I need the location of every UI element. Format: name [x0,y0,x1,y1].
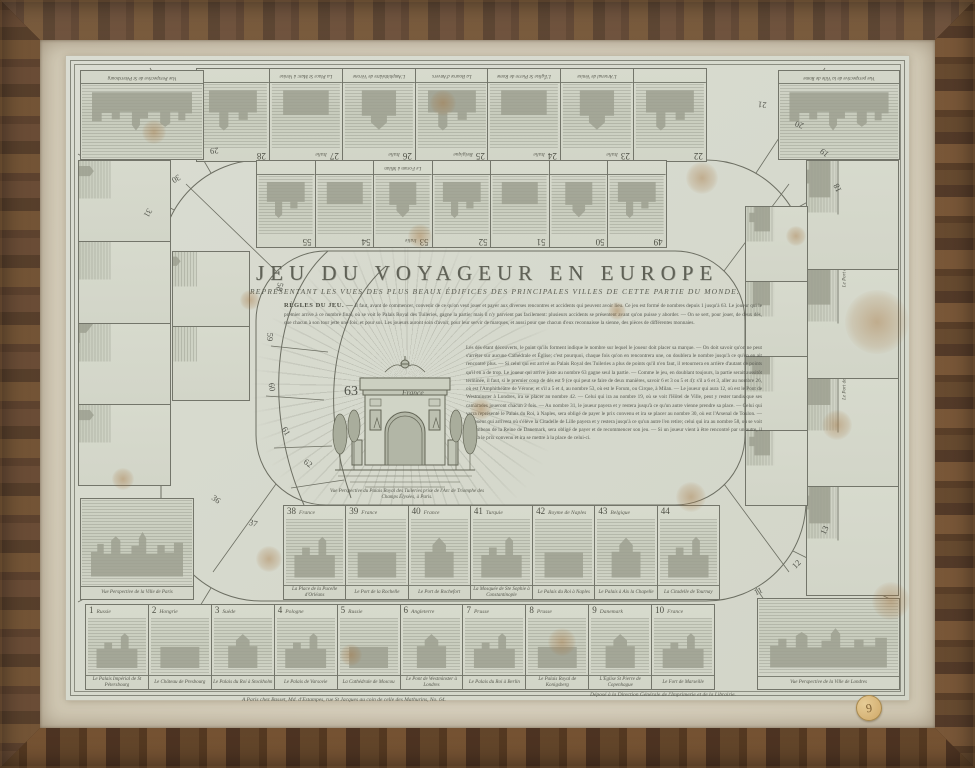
cell-engraving [259,176,313,234]
cell-caption: L'Amphithéâtre de Vérone [343,69,415,83]
cell-engraving [286,519,343,584]
cell-country: Belgique [610,511,630,517]
cell-country: Italie [388,151,400,157]
cell-caption [197,69,269,83]
board-cell: 24Italie L'Église St Pierre de Rome [487,69,560,161]
cell-number: 25 [475,151,484,160]
cell-number: 43 [598,507,607,516]
board-cell: 10France Le Fort de Marseille [651,605,715,689]
cell-engraving [563,84,631,148]
cell-number: 42 [536,507,545,516]
board-cell: 55 [256,161,315,247]
cell-engraving [660,519,717,584]
board-cell: 44 La Citadelle de Tournay [657,506,720,599]
cell-engraving [411,519,468,584]
corner-caption: Vue perspective de la Ville de Rome [779,71,899,84]
board-cell: 9Danemark L'Église St Pierre de Copenhag… [588,605,651,689]
board-cell: 50 [549,161,608,247]
board-cell: 51 [490,161,549,247]
board-cell: 40France Le Port de Rochefort [408,506,470,599]
cell-engraving [277,618,335,674]
cell-country: Angleterre [411,610,434,616]
cell-engraving [528,618,586,674]
board-cell: 16Espagne Le Port de Cadix [807,269,898,378]
cell-country: Russie [348,610,362,616]
board-cell: 54 [315,161,374,247]
board-cell: 52 [432,161,491,247]
cell-caption [491,161,549,175]
board-cell: 6Angleterre Le Pont de Westminster à Lon… [400,605,463,689]
cell-engraving [807,378,837,431]
cell-number: 1 [89,606,94,615]
cell-country: Turquie [486,511,503,517]
board-cell: 38France La Place de la Pucelle d'Orléan… [283,506,345,599]
cell-number: 7 [466,606,471,615]
cell-number: 27 [330,151,339,160]
board-cell: 41Turquie La Mosquée de Ste Sophie à Con… [470,506,532,599]
bottom-inner-row: 38France La Place de la Pucelle d'Orléan… [283,505,720,600]
cell-engraving [376,176,430,234]
board-cell: 39France Le Port de la Rochelle [345,506,407,599]
cell-engraving [173,326,197,362]
board-cell: 7Prusse Le Palais du Roi à Berlin [462,605,525,689]
cell-country: Prusse [537,610,552,616]
cell-engraving [535,519,592,584]
left-inner-column: 56 57 [172,251,250,401]
cell-caption: Le Port de la Rochelle [346,585,407,599]
cell-engraving [214,618,272,674]
rules-column: Les dés étant découverts, le point qu'il… [466,344,762,443]
bottom-outer-row: 1Russie Le Palais Impérial de St Pétersb… [85,604,715,690]
cell-engraving [654,618,712,674]
cell-engraving [318,176,372,234]
cell-country: France [424,511,440,517]
cell-caption [838,486,852,541]
city-view-engraving [82,500,192,585]
cell-caption: La Citadelle de Tournay [658,585,719,599]
cell-country: Hongrie [159,610,177,616]
board-cell: 3Suède Le Palais du Roi à Stockholm [211,605,274,689]
cell-caption: La Cathédrale de Moscou [338,675,400,689]
cell-number: 44 [661,507,670,516]
corner-vignette-paris: Vue Perspective de la Ville de Paris [80,498,194,600]
board-cell: 8Prusse Le Palais Royal de Konigsberg [525,605,588,689]
curve-space-29: 29 [210,146,219,157]
cell-engraving [340,618,398,674]
board-cell: 17Portugal [807,160,898,269]
cell-caption: Le Château de Presbourg [149,675,211,689]
board-cell: 14France [807,486,898,596]
cell-number: 22 [694,151,703,160]
cell-number: 24 [548,151,557,160]
board-cell: 56 [173,251,249,326]
board-cell: 1Russie Le Palais Impérial de St Pétersb… [85,605,148,689]
cell-country: Italie [607,151,619,157]
cell-number: 8 [529,606,534,615]
cell-number: 52 [478,237,487,246]
cell-number: 9 [592,606,597,615]
cell-caption: La Mosquée de Ste Sophie à Constantinopl… [471,585,532,599]
cell-engraving [79,323,111,362]
top-inner-row: 55 54 53Italie Le Forum à Milan [256,160,667,248]
cell-engraving [473,519,530,584]
cell-caption [550,161,608,175]
cell-caption: L'Église St Pierre de Rome [488,69,560,83]
cell-number: 50 [595,237,604,246]
board-cell: 22 [633,69,707,161]
cell-number: 6 [404,606,409,615]
cell-engraving [79,160,111,199]
corner-caption: Vue Perspective de la Ville de Paris [81,586,193,599]
board-cell: 23Italie L'Arsenal de Venise [560,69,633,161]
cell-country: Danemark [600,610,623,616]
board-cell: 57 [173,326,249,402]
cell-number: 49 [654,237,663,246]
cell-country: Italie [534,151,546,157]
board-cell: 34France [79,323,170,404]
curve-space-21: 21 [758,100,767,111]
cell-number: 28 [257,151,266,160]
rules-heading: RÈGLES DU JEU. — [284,302,353,309]
cell-engraving [199,84,267,148]
cell-caption: Le Palais de Varsovie [275,675,337,689]
corner-vignette-london: Vue Perspective de la Ville de Londres [757,598,900,690]
cell-country: Italie [315,151,327,157]
cell-country: Belgique [453,151,473,157]
board-cell: 4Pologne Le Palais de Varsovie [274,605,337,689]
cell-number: 4 [278,606,283,615]
board-cell: 26Italie L'Amphithéâtre de Vérone [342,69,415,161]
cell-caption: Le Palais du Roi à Berlin [463,675,525,689]
city-view-engraving [759,600,898,675]
cell-country: Russie [97,610,111,616]
cell-number: 38 [287,507,296,516]
cell-engraving [610,176,664,234]
cell-caption: Le Fort de Marseille [652,675,714,689]
corner-caption: Vue Perspective de St Pétersbourg [81,71,203,84]
cell-engraving [465,618,523,674]
board-cell: 42Royme de Naples Le Palais du Roi à Nap… [532,506,594,599]
cell-caption: La Bourse d'Anvers [416,69,488,83]
game-title: JEU DU VOYAGEUR EN EUROPE [256,261,716,286]
cell-number: 39 [349,507,358,516]
publisher-imprint: A Paris chez Basset, Md. d'Estampes, rue… [242,697,446,703]
city-view-engraving [82,85,202,158]
board-cell: 48 [746,206,807,281]
cell-caption: L'Église St Pierre de Copenhague [589,675,651,689]
cell-engraving [272,84,340,148]
cell-country: Prusse [474,610,489,616]
inner-space-58: 58 [275,282,286,292]
cell-number: 5 [341,606,346,615]
cell-country: Suède [222,610,235,616]
cell-caption: Le Palais du Roi à Stockholm [212,675,274,689]
center-space-country: France [402,388,424,397]
cell-caption: Le Pont de Westminster à Londres [401,675,463,689]
framed-game-board-photo: 28 27Italie La Place St Marc à Venise 26… [0,0,975,768]
top-outer-row: 28 27Italie La Place St Marc à Venise 26… [196,68,707,162]
cell-engraving [418,84,486,148]
cell-caption: Le Port de Rochefort [409,585,470,599]
game-subtitle: REPRÉSENTANT LES VUES DES PLUS BEAUX ÉDI… [250,287,722,296]
cell-caption: Le Port de Cadix [838,269,852,324]
cell-number: 41 [474,507,483,516]
cell-caption: La Place de la Pucelle d'Orléans [284,585,345,599]
cell-engraving [79,404,111,443]
cell-engraving [348,519,405,584]
cell-engraving [636,84,704,148]
cell-caption: Le Palais à Aix la Chapelle [595,585,656,599]
cell-number: 54 [361,237,370,246]
corner-caption: Vue Perspective de la Ville de Londres [758,676,899,689]
cell-engraving [173,251,197,287]
cell-engraving [807,269,837,322]
corner-vignette-rome: Vue perspective de la Ville de Rome [778,70,900,160]
cell-engraving [591,618,649,674]
board-cell: 27Italie La Place St Marc à Venise [269,69,342,161]
board-cell: 15France Le Port de Bordeaux [807,378,898,487]
cell-number: 23 [621,151,630,160]
cell-engraving [435,176,489,234]
cell-caption: Le Port de Bordeaux [838,378,852,433]
sticker-number: 9 [865,700,874,716]
cell-engraving [597,519,654,584]
cell-caption: La Place St Marc à Venise [270,69,342,83]
cell-country: Royme de Naples [548,511,586,517]
cell-caption: L'Arsenal de Venise [561,69,633,83]
cell-country: Pologne [285,610,303,616]
inner-space-60: 60 [267,382,278,392]
board-cell: 25Belgique La Bourse d'Anvers [415,69,488,161]
cell-number: 26 [403,151,412,160]
cell-number: 53 [420,237,429,246]
cell-engraving [403,618,461,674]
center-space-number: 63 [344,384,358,400]
cell-country: France [361,511,377,517]
cell-engraving [88,618,146,674]
board-cell: 2Hongrie Le Château de Presbourg [148,605,211,689]
board-cell: 49 [607,161,667,247]
rules-intro-text: Il faut, avant de commencer, convenir de… [284,303,762,326]
cell-engraving [345,84,413,148]
cell-caption [634,69,706,83]
corner-vignette-st-petersburg: Vue Perspective de St Pétersbourg [80,70,204,160]
board-cell: 5Russie La Cathédrale de Moscou [337,605,400,689]
cell-caption [257,161,315,175]
cell-engraving [746,206,775,242]
cell-number: 55 [303,237,312,246]
cell-number: 51 [537,237,546,246]
inner-space-59: 59 [265,333,275,342]
arc-de-triomphe-engraving [330,352,480,492]
board-cell: 43Belgique Le Palais à Aix la Chapelle [594,506,656,599]
cell-number: 10 [655,606,664,615]
cell-caption [608,161,666,175]
cell-engraving [490,84,558,148]
cell-number: 40 [412,507,421,516]
board-cell: 28 [196,69,269,161]
cell-caption: Le Palais Impérial de St Pétersbourg [86,675,148,689]
left-outer-column: 32 33France 34France [78,160,171,486]
cell-number: 3 [215,606,220,615]
cell-number: 2 [152,606,157,615]
cell-engraving [151,618,209,674]
cell-caption: Le Forum à Milan [374,161,432,175]
cell-caption [316,161,374,175]
cell-caption [433,161,491,175]
cell-country: France [299,511,315,517]
deposit-imprint: Déposé à la Direction Générale de l'Impr… [590,692,736,698]
cell-engraving [79,241,111,280]
board-cell: 35France [79,404,170,486]
board-cell: 32 [79,160,170,241]
rules-intro: RÈGLES DU JEU. — Il faut, avant de comme… [284,301,762,327]
cell-country: Italie [405,237,417,243]
board-cell: 33France [79,241,170,322]
cell-engraving [493,176,547,234]
board-cell: 53Italie Le Forum à Milan [373,161,432,247]
cell-caption: Le Palais Royal de Konigsberg [526,675,588,689]
center-space-caption: Vue Perspective du Palais Royal des Tuil… [322,489,492,501]
cell-country: France [667,610,683,616]
cell-caption: Le Palais du Roi à Naples [533,585,594,599]
cell-engraving [552,176,606,234]
